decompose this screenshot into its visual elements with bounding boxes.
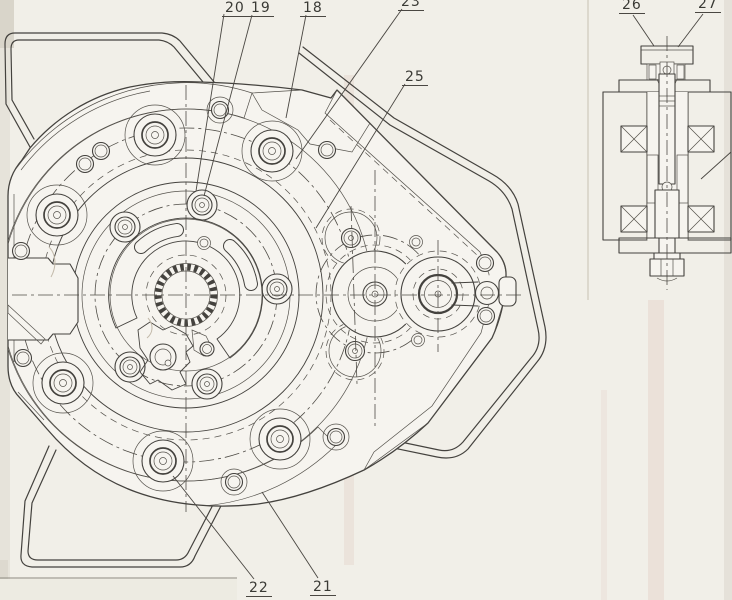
- scanned-technical-drawing: 20 19 18 23 25 26 27 21 22: [0, 0, 732, 600]
- inlet-port: [8, 258, 78, 344]
- callout-21: 21: [310, 580, 336, 596]
- leader-21: [262, 492, 318, 578]
- leader-26: [633, 15, 654, 46]
- pump-front-view: [0, 82, 524, 512]
- callout-25: 25: [402, 70, 428, 86]
- shaft-stub: [499, 277, 516, 306]
- drawing-canvas: [0, 0, 732, 600]
- callout-22: 22: [246, 581, 272, 597]
- callout-27: 27: [695, 0, 721, 13]
- callout-26: 26: [619, 0, 645, 14]
- callout-20: 20: [222, 1, 248, 17]
- leader-27: [678, 14, 703, 47]
- callout-19: 19: [248, 1, 274, 17]
- relief-valve-section-view: [603, 36, 731, 290]
- callout-18: 18: [300, 1, 326, 17]
- callout-23: 23: [398, 0, 424, 11]
